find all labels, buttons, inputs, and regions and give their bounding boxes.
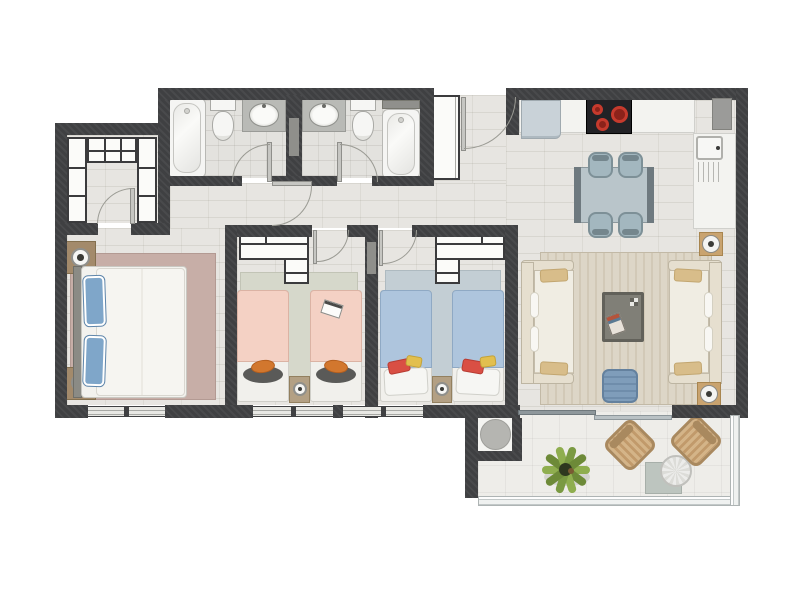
dining-table — [574, 167, 654, 223]
bed2-a-blanket — [237, 290, 289, 362]
floor-plan — [0, 0, 800, 602]
dining-chair-3 — [588, 212, 613, 238]
sofa-right-back — [709, 262, 722, 384]
sofa-right-roll-pillow-1 — [704, 292, 713, 318]
wall-bottom-a — [55, 405, 88, 418]
sofa-left-back — [521, 262, 534, 384]
master-pillow-2 — [83, 336, 106, 387]
closet-shelf-left — [67, 137, 87, 223]
sofa-left-roll-pillow-2 — [530, 326, 539, 352]
terrace-railing-bottom — [478, 496, 740, 506]
wall-bath-bottom-a — [158, 176, 242, 186]
dining-chair-1 — [588, 152, 613, 178]
wall-bed2-top-b — [347, 225, 365, 237]
dining-table-rail-left — [574, 167, 581, 223]
burner-small-icon — [592, 104, 603, 115]
terrace-railing-right — [730, 415, 740, 506]
wall-bath-left — [158, 100, 170, 228]
bath-2-wall-shelf — [382, 100, 420, 109]
sofa-right-tan-cushion-top — [674, 268, 703, 282]
bathtub-2-drain-icon — [398, 117, 404, 123]
dining-table-rail-right — [647, 167, 654, 223]
kitchen-sink — [521, 100, 561, 139]
living-plant-pot-bottom — [697, 382, 721, 406]
wall-bath-bottom-c — [372, 176, 434, 186]
closet-shelf-top — [87, 137, 137, 163]
sofa-left-tan-cushion-top — [540, 268, 569, 282]
burner-large-icon — [611, 106, 628, 123]
toilet-2-bowl — [352, 111, 374, 141]
vanity-2-faucet-icon — [322, 104, 326, 108]
wall-master-bed2 — [225, 225, 237, 418]
wall-closet-bottom-a — [55, 223, 98, 235]
wall-closet-top — [55, 123, 170, 135]
dining-chair-2 — [618, 152, 643, 178]
dining-chair-4 — [618, 212, 643, 238]
toilet-1-bowl — [212, 111, 234, 141]
bed2-lamp-icon — [293, 382, 307, 396]
utility-circle — [480, 419, 511, 450]
wall-bath-right — [420, 88, 434, 185]
sofa-left-roll-pillow-1 — [530, 292, 539, 318]
master-window-mullion — [124, 406, 129, 417]
hallway-floor — [170, 183, 506, 228]
sliding-door-rail-right — [594, 415, 672, 420]
coffee-table-deco — [630, 298, 638, 306]
master-pillow-1 — [83, 276, 106, 327]
wall-left-outer — [55, 123, 67, 418]
burner-medium-icon — [596, 118, 609, 131]
bed2-b-blanket — [310, 290, 362, 362]
wall-bed3-living — [505, 225, 518, 418]
plant-soil-dot — [568, 468, 574, 474]
toilet-2-tank — [350, 99, 376, 111]
kitchen-duct — [712, 98, 732, 130]
vanity-1-faucet-icon — [262, 104, 266, 108]
bed2-window-mullion — [291, 406, 296, 417]
sofa-left-tan-cushion-bottom — [540, 361, 569, 375]
master-lamp-top-icon — [71, 248, 90, 267]
wall-closet-bottom-b — [131, 223, 170, 235]
wall-bottom-b — [165, 405, 253, 418]
master-duvet — [96, 268, 185, 396]
sofa-right-seat — [669, 270, 709, 374]
wall-terrace-left — [465, 405, 478, 498]
terrace-plant — [538, 444, 594, 496]
sofa-right-roll-pillow-2 — [704, 326, 713, 352]
bed3-b-blanket — [452, 290, 504, 368]
sliding-door-rail-left — [518, 410, 596, 415]
wall-bed3-top — [412, 225, 518, 237]
bed3-lamp-icon — [435, 382, 449, 396]
wall-right-outer — [736, 88, 748, 418]
bed2-wardrobe-side — [284, 258, 309, 284]
bed3-wardrobe-side — [435, 258, 460, 284]
sofa-right-tan-cushion-bottom — [674, 361, 703, 375]
toilet-1-tank — [210, 99, 236, 111]
refrigerator-vent — [698, 162, 722, 182]
wall-niche-bottom — [478, 451, 522, 461]
living-plant-pot-top — [699, 232, 723, 256]
bathtub-1-drain-icon — [184, 108, 190, 114]
wall-niche-right — [512, 418, 522, 451]
bed-divider-shaft — [367, 242, 376, 274]
bed3-b-yellow-cushion — [479, 355, 496, 368]
closet-shelf-right — [137, 137, 157, 223]
sofa-left-seat — [534, 270, 574, 374]
bath-divider-shaft — [289, 118, 299, 156]
refrigerator-handle — [716, 146, 720, 150]
wall-bed2-top-a — [225, 225, 312, 237]
bed3-window-mullion — [381, 406, 386, 417]
pouf — [602, 369, 638, 403]
wall-bottom-c — [333, 405, 343, 418]
